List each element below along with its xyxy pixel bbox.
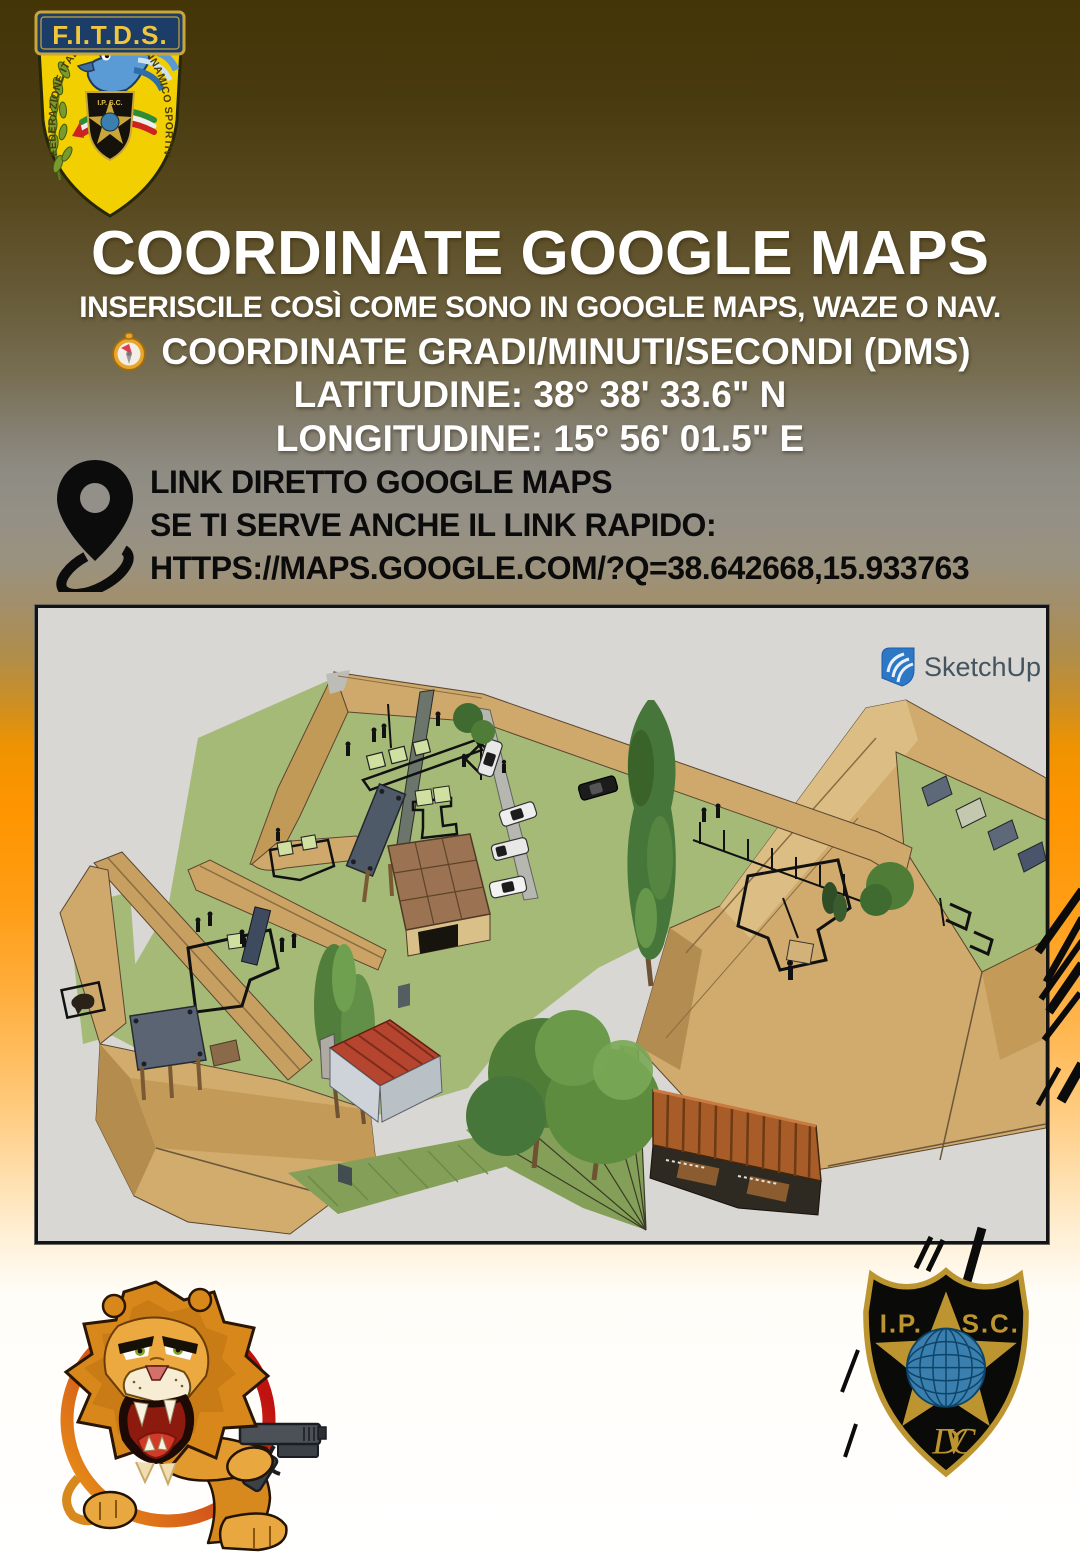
mini-shield-label: I.P. S.C. (97, 100, 122, 107)
link-line-1: LINK DIRETTO GOOGLE MAPS (150, 464, 612, 501)
maps-url-text: HTTPS://MAPS.GOOGLE.COM/?Q=38.642668,15.… (150, 550, 969, 587)
link-line-2: SE TI SERVE ANCHE IL LINK RAPIDO: (150, 507, 716, 544)
dms-heading-row: COORDINATE GRADI/MINUTI/SECONDI (DMS) (0, 331, 1080, 373)
fitds-logo: I.P. S.C. FEDERAZIONE ITALIANA TIRO DINA… (30, 4, 190, 218)
lion-club-logo (18, 1248, 333, 1560)
longitude-line: LONGITUDINE: 15° 56' 01.5" E (0, 418, 1080, 460)
dms-heading: COORDINATE GRADI/MINUTI/SECONDI (DMS) (161, 331, 970, 373)
globe-icon (907, 1329, 985, 1407)
latitude-line: LATITUDINE: 38° 38' 33.6" N (0, 374, 1080, 416)
ipsc-left-text: I.P. (880, 1308, 923, 1338)
fitds-banner-text: F.I.T.D.S. (52, 20, 167, 50)
sketchup-label: SketchUp (924, 652, 1041, 682)
map-pin-icon (50, 458, 140, 592)
sketchup-scene: SketchUp (38, 608, 1046, 1241)
ipsc-right-text: S.C. (962, 1308, 1020, 1338)
flyer-page: I.P. S.C. FEDERAZIONE ITALIANA TIRO DINA… (0, 0, 1080, 1560)
page-subtitle: INSERISCILE COSÌ COME SONO IN GOOGLE MAP… (0, 291, 1080, 325)
sketchup-logo: SketchUp (882, 648, 1041, 686)
page-title: COORDINATE GOOGLE MAPS (0, 218, 1080, 289)
compass-icon (109, 332, 149, 372)
ipsc-shield-logo: I.P. S.C. DVC (852, 1256, 1040, 1484)
range-3d-render: SketchUp (35, 605, 1049, 1244)
